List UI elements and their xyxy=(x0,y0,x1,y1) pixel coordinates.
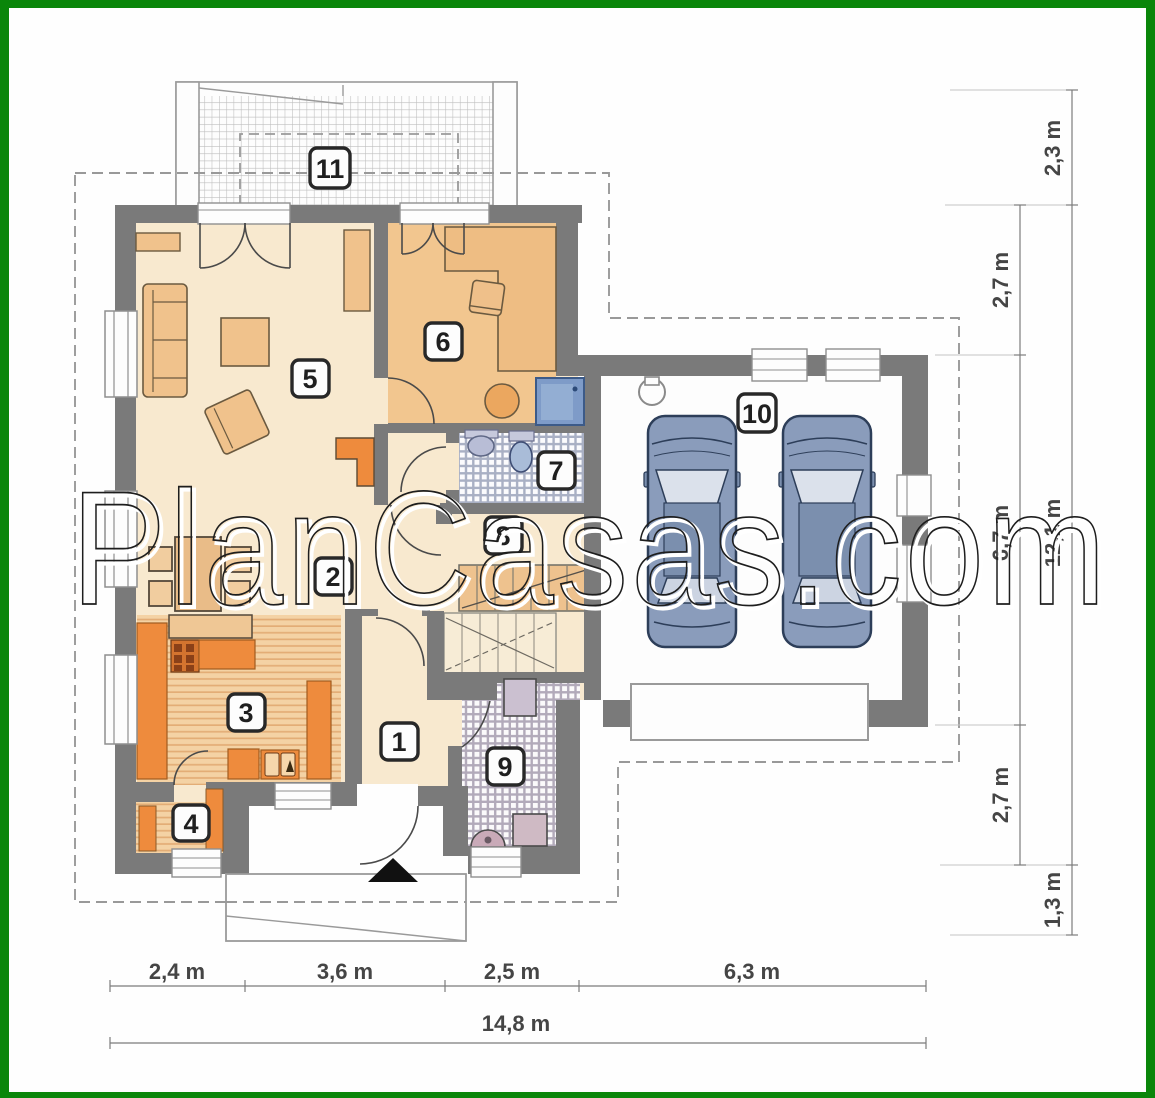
svg-text:11: 11 xyxy=(316,154,345,184)
svg-text:2,4 m: 2,4 m xyxy=(149,959,205,984)
svg-text:1: 1 xyxy=(391,727,406,757)
svg-text:4: 4 xyxy=(183,809,198,839)
svg-text:2,7 m: 2,7 m xyxy=(988,252,1013,308)
svg-text:PlanCasas.com: PlanCasas.com xyxy=(71,459,1106,639)
svg-text:6: 6 xyxy=(435,327,450,357)
svg-text:9: 9 xyxy=(497,752,512,782)
svg-text:1,3 m: 1,3 m xyxy=(1040,872,1065,928)
svg-text:2,3 m: 2,3 m xyxy=(1040,120,1065,176)
svg-text:6,3 m: 6,3 m xyxy=(724,959,780,984)
svg-text:5: 5 xyxy=(302,364,317,394)
svg-text:2,7 m: 2,7 m xyxy=(988,767,1013,823)
svg-text:3,6 m: 3,6 m xyxy=(317,959,373,984)
svg-text:2,5 m: 2,5 m xyxy=(484,959,540,984)
svg-text:10: 10 xyxy=(742,399,772,429)
svg-text:14,8 m: 14,8 m xyxy=(482,1011,551,1036)
svg-text:3: 3 xyxy=(238,698,253,728)
